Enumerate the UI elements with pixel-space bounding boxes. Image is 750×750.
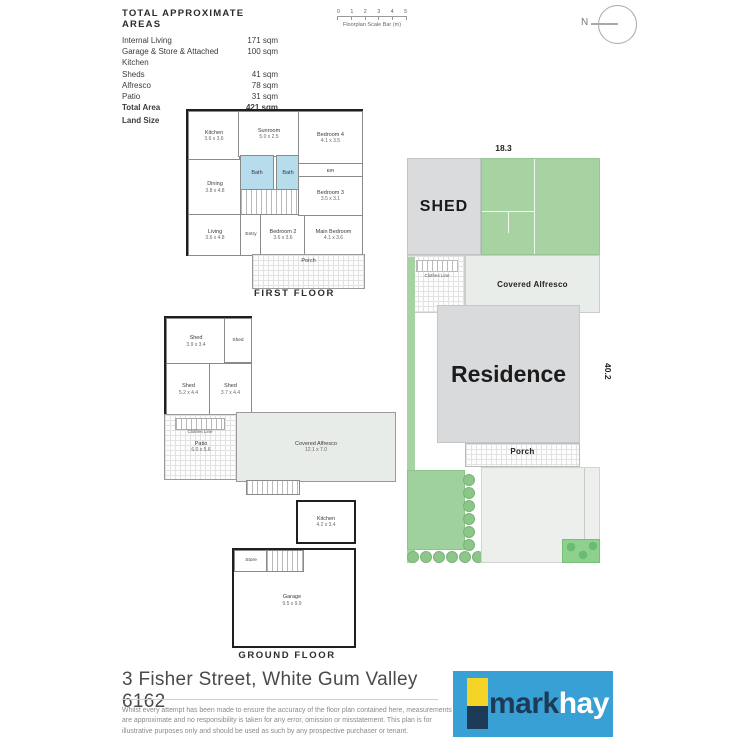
area-label: Land Size (122, 115, 159, 126)
bush-icon (463, 539, 475, 551)
first-floor-title: FIRST FLOOR (204, 288, 385, 299)
site-plan: 18.3 40.2 SHED Clothes Line Covered Alfr… (407, 158, 600, 564)
table-row: Alfresco78 sqm (122, 80, 278, 91)
area-label: Alfresco (122, 80, 151, 91)
room-sunroom: Sunroom5.0 x 2.5 (238, 111, 300, 157)
site-residence: Residence (437, 305, 580, 443)
room-bedroom-3: Bedroom 33.5 x 3.1 (298, 176, 363, 216)
table-row: Patio31 sqm (122, 91, 278, 102)
site-shed-area: SHED (407, 158, 481, 255)
scale-tick: 4 (391, 9, 394, 15)
site-garden-patch (562, 539, 600, 563)
table-row: Sheds41 sqm (122, 69, 278, 80)
stairs-first-floor (240, 189, 300, 216)
ground-floor-plan: Shed3.9 x 3.4 Shed Shed5.2 x 4.4 Shed3.7… (162, 316, 394, 664)
sheds-outline: Shed3.9 x 3.4 Shed Shed5.2 x 4.4 Shed3.7… (164, 316, 252, 416)
table-row: Internal Living171 sqm (122, 35, 278, 46)
area-label: Sheds (122, 69, 145, 80)
compass-circle-icon (598, 5, 637, 44)
area-label: Garage & Store & Attached Kitchen (122, 46, 230, 68)
first-floor-outline: Kitchen3.6 x 3.6 Dining3.8 x 4.8 Living3… (186, 109, 363, 256)
clothes-line-label: Clothes Line (165, 429, 235, 434)
clothes-line-icon (416, 260, 458, 272)
floorplan-document: TOTAL APPROXIMATE AREAS Internal Living1… (0, 0, 750, 750)
site-alfresco-label: Covered Alfresco (497, 280, 568, 289)
area-value: 41 sqm (230, 69, 278, 80)
garden-divider-line (508, 211, 509, 233)
area-label: Internal Living (122, 35, 172, 46)
site-lawn (407, 470, 465, 550)
room-bath-2: Bath (276, 155, 300, 191)
room-bedroom-4: Bedroom 44.1 x 3.5 (298, 111, 363, 165)
room-shed-4: Shed3.7 x 4.4 (209, 363, 252, 416)
room-main-bedroom: Main Bedroom4.1 x 3.6 (304, 214, 363, 256)
markhay-logo: markhay (453, 671, 613, 737)
bush-icon (463, 500, 475, 512)
disclaimer-text: Whilst every attempt has been made to en… (122, 706, 458, 737)
scale-tick: 0 (337, 9, 340, 15)
room-kitchen-ground: Kitchen4.2 x 3.4 (296, 500, 356, 544)
room-dining: Dining3.8 x 4.8 (188, 159, 242, 216)
site-porch-label: Porch (466, 447, 579, 456)
room-shed-3: Shed5.2 x 4.4 (166, 363, 211, 416)
bush-row-horizontal (407, 551, 484, 563)
bush-icon (459, 551, 471, 563)
compass-needle-icon (591, 23, 618, 25)
covered-alfresco-ground: Covered Alfresco12.1 x 7.0 (236, 412, 396, 482)
bush-icon (463, 487, 475, 499)
room-bath-1: Bath (240, 155, 274, 191)
stairs-garage (266, 550, 304, 572)
scale-tick: 1 (350, 9, 353, 15)
bush-icon (463, 526, 475, 538)
bush-icon (420, 551, 432, 563)
garden-divider-line (534, 159, 535, 254)
area-label: Total Area (122, 102, 160, 113)
logo-navy-block-icon (467, 706, 488, 729)
scale-tick: 3 (377, 9, 380, 15)
scale-bar-line (337, 16, 407, 20)
area-value: 78 sqm (230, 80, 278, 91)
room-garage: Garage9.5 x 9.9 (234, 594, 350, 607)
area-value: 171 sqm (230, 35, 278, 46)
site-porch: Porch (465, 443, 580, 467)
bush-icon (407, 551, 419, 563)
compass-north-label: N (581, 17, 588, 28)
table-row: Garage & Store & Attached Kitchen100 sqm (122, 46, 278, 68)
room-entry: Entry (240, 214, 262, 256)
bush-icon (463, 513, 475, 525)
areas-table-title: TOTAL APPROXIMATE AREAS (122, 8, 278, 30)
first-floor-plan: Kitchen3.6 x 3.6 Dining3.8 x 4.8 Living3… (186, 103, 367, 303)
site-clothes-line-label: Clothes Line (408, 273, 466, 278)
logo-yellow-block-icon (467, 678, 488, 706)
scale-tick: 2 (364, 9, 367, 15)
floorplan-scale-bar: 0 1 2 3 4 5 Floorplan Scale Bar (m) (337, 9, 407, 28)
site-garden-top (481, 158, 600, 255)
area-label: Patio (122, 91, 140, 102)
scale-tick: 5 (404, 9, 407, 15)
bush-row-vertical (463, 474, 475, 551)
garage-outline: Store Garage9.5 x 9.9 (232, 548, 356, 648)
area-value: 100 sqm (230, 46, 278, 68)
bush-icon (463, 474, 475, 486)
room-shed-1: Shed3.9 x 3.4 (166, 318, 226, 365)
bush-icon (433, 551, 445, 563)
footer-divider (122, 699, 438, 700)
room-bedroom-2: Bedroom 23.6 x 3.6 (260, 214, 306, 256)
bush-icon (446, 551, 458, 563)
site-width-dimension: 18.3 (407, 143, 600, 153)
porch-first-floor: Porch (252, 254, 365, 289)
scale-bar-ticks: 0 1 2 3 4 5 (337, 9, 407, 16)
scale-bar-label: Floorplan Scale Bar (m) (337, 22, 407, 28)
room-store: Store (234, 550, 268, 572)
area-value: 31 sqm (230, 91, 278, 102)
site-shed-label: SHED (420, 198, 468, 216)
ground-floor-title: GROUND FLOOR (172, 650, 402, 661)
site-depth-dimension: 40.2 (603, 363, 613, 380)
room-shed-2: Shed (224, 318, 252, 363)
site-residence-label: Residence (451, 361, 566, 388)
patio-area: Clothes Line Patio6.0 x 5.6 (164, 414, 238, 480)
logo-wordmark: markhay (489, 687, 609, 721)
room-living: Living3.6 x 4.8 (188, 214, 242, 256)
room-kitchen: Kitchen3.6 x 3.6 (188, 111, 240, 161)
stairs-ground-floor (246, 480, 300, 495)
